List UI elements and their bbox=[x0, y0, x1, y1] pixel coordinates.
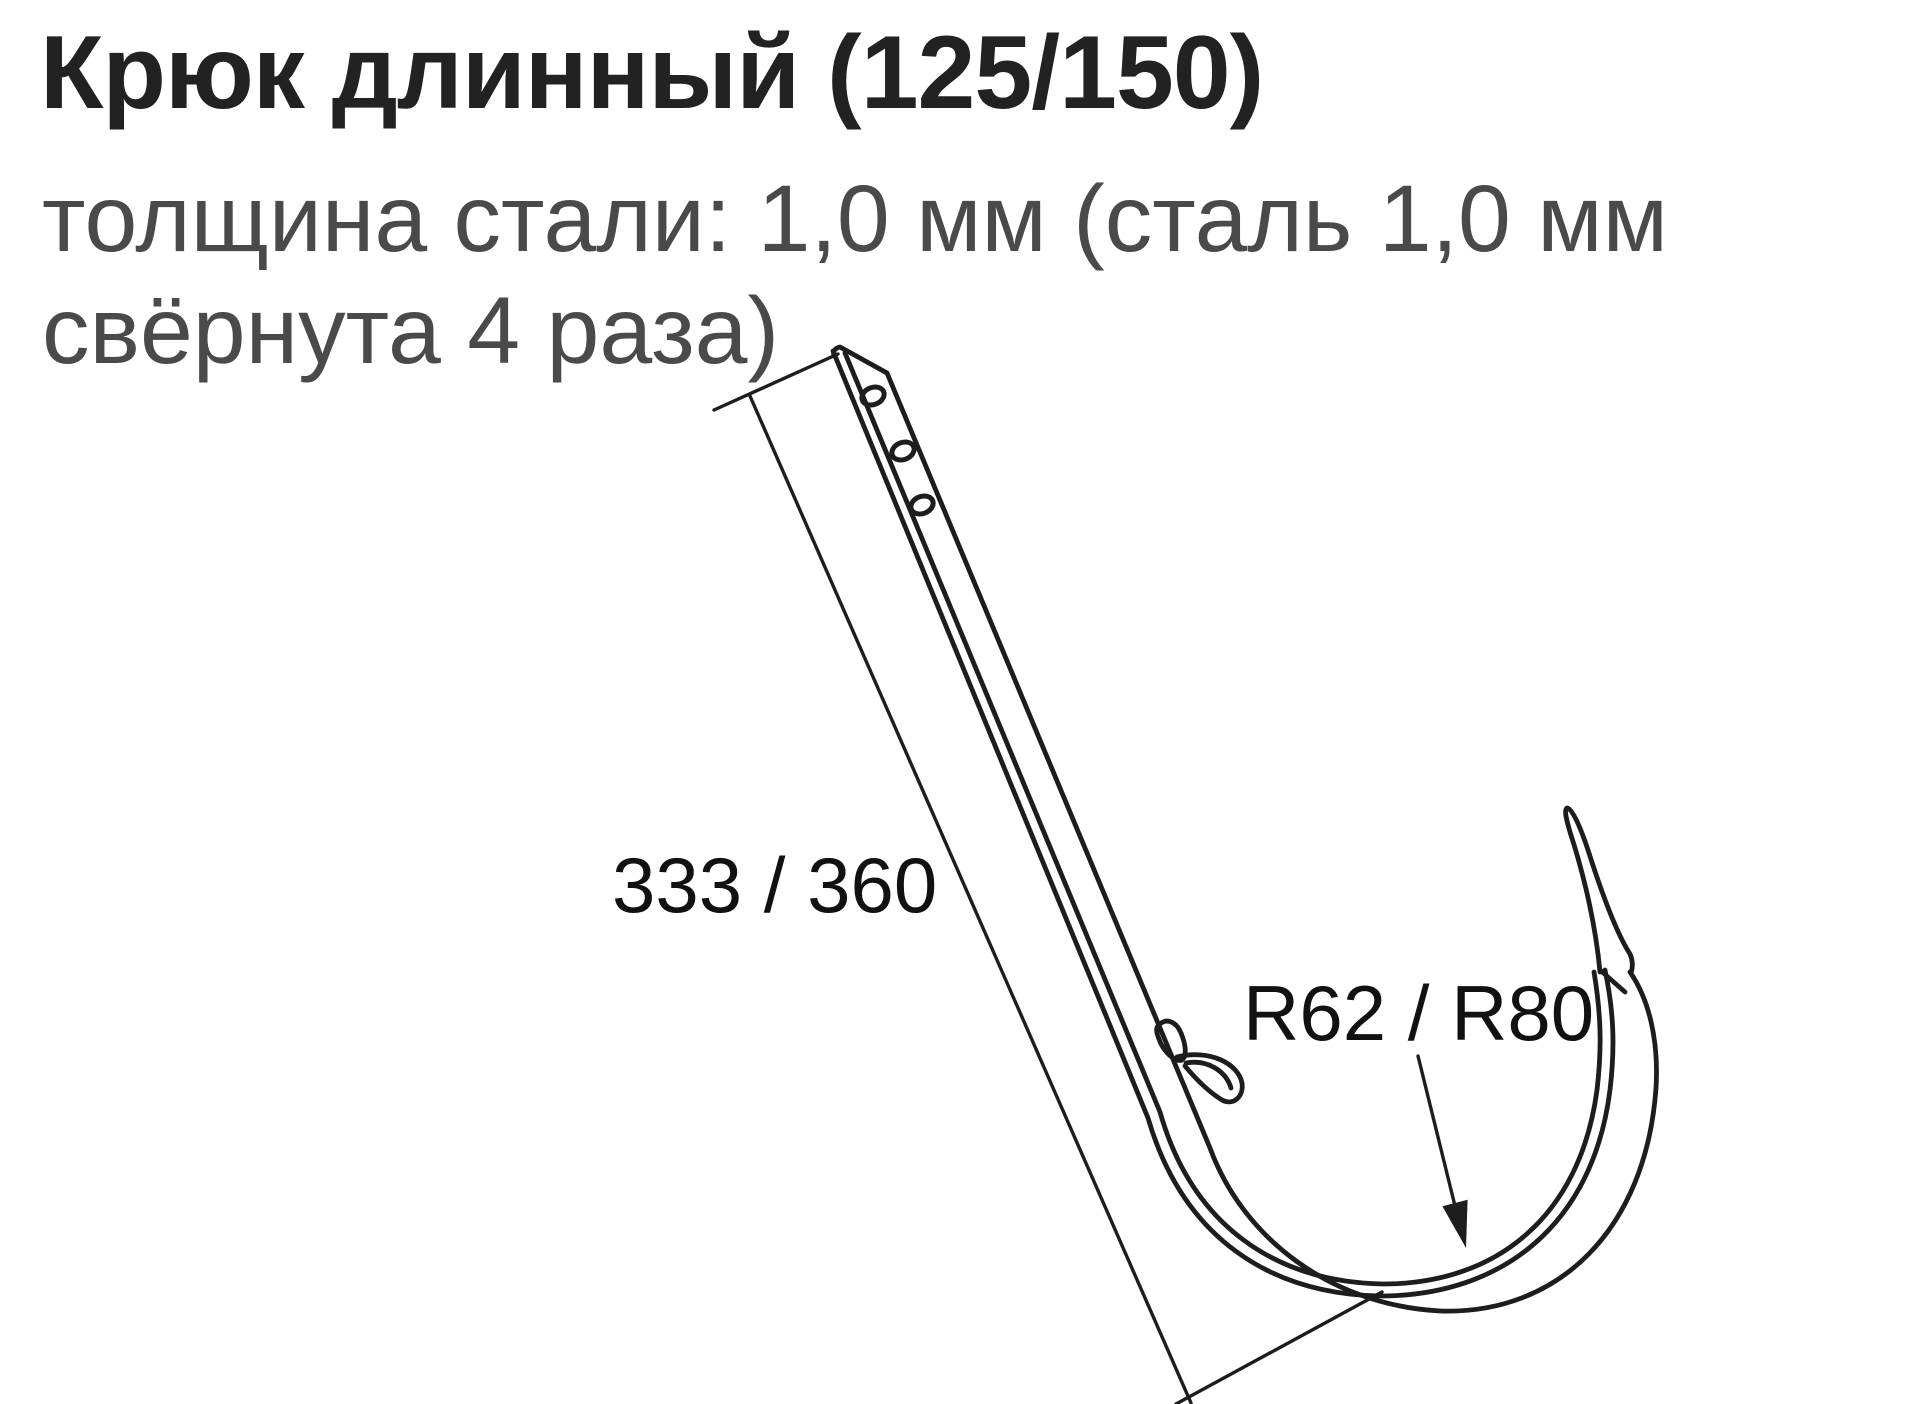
mounting-hole-2 bbox=[889, 439, 917, 463]
lip-crease bbox=[1600, 970, 1625, 992]
length-dimension-label: 333 / 360 bbox=[612, 841, 937, 929]
radius-arrowhead-icon bbox=[1442, 1200, 1467, 1248]
page: Крюк длинный (125/150) толщина стали: 1,… bbox=[0, 0, 1920, 1404]
strap-fold-line-and-bowl-inner bbox=[845, 353, 1600, 1284]
strap-outer-edge-and-bowl-outer bbox=[833, 351, 1613, 1296]
mounting-hole-3 bbox=[908, 493, 936, 517]
radius-arrow-line bbox=[1418, 1056, 1455, 1206]
radius-dimension-label: R62 / R80 bbox=[1243, 969, 1594, 1057]
dimension-extension-bottom bbox=[1176, 1292, 1382, 1404]
hook-technical-drawing: 333 / 360 R62 / R80 bbox=[0, 0, 1920, 1404]
strap-inner-edge-and-bowl-far-edge bbox=[887, 373, 1656, 1311]
dimension-extension-top bbox=[714, 354, 838, 410]
mounting-hole-1 bbox=[859, 384, 887, 408]
gutter-lip bbox=[1566, 808, 1633, 973]
